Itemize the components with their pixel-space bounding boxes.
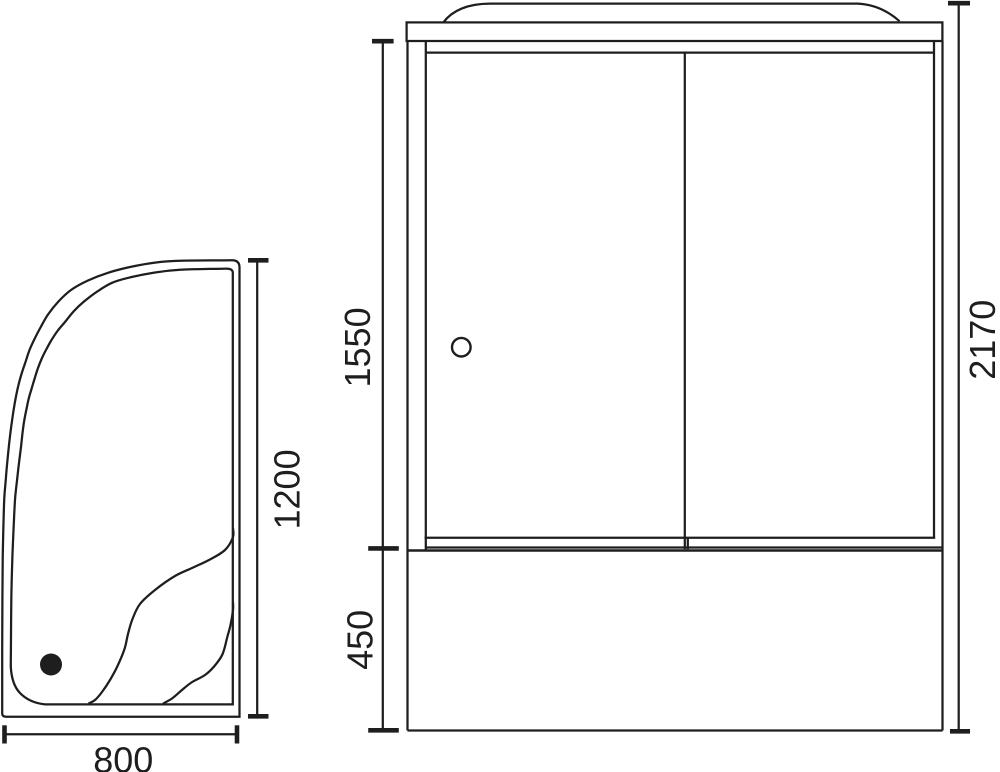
svg-text:800: 800: [93, 739, 153, 772]
svg-text:1550: 1550: [337, 307, 378, 387]
svg-text:2170: 2170: [962, 300, 1000, 380]
svg-text:450: 450: [340, 610, 381, 670]
svg-text:1200: 1200: [267, 449, 308, 529]
